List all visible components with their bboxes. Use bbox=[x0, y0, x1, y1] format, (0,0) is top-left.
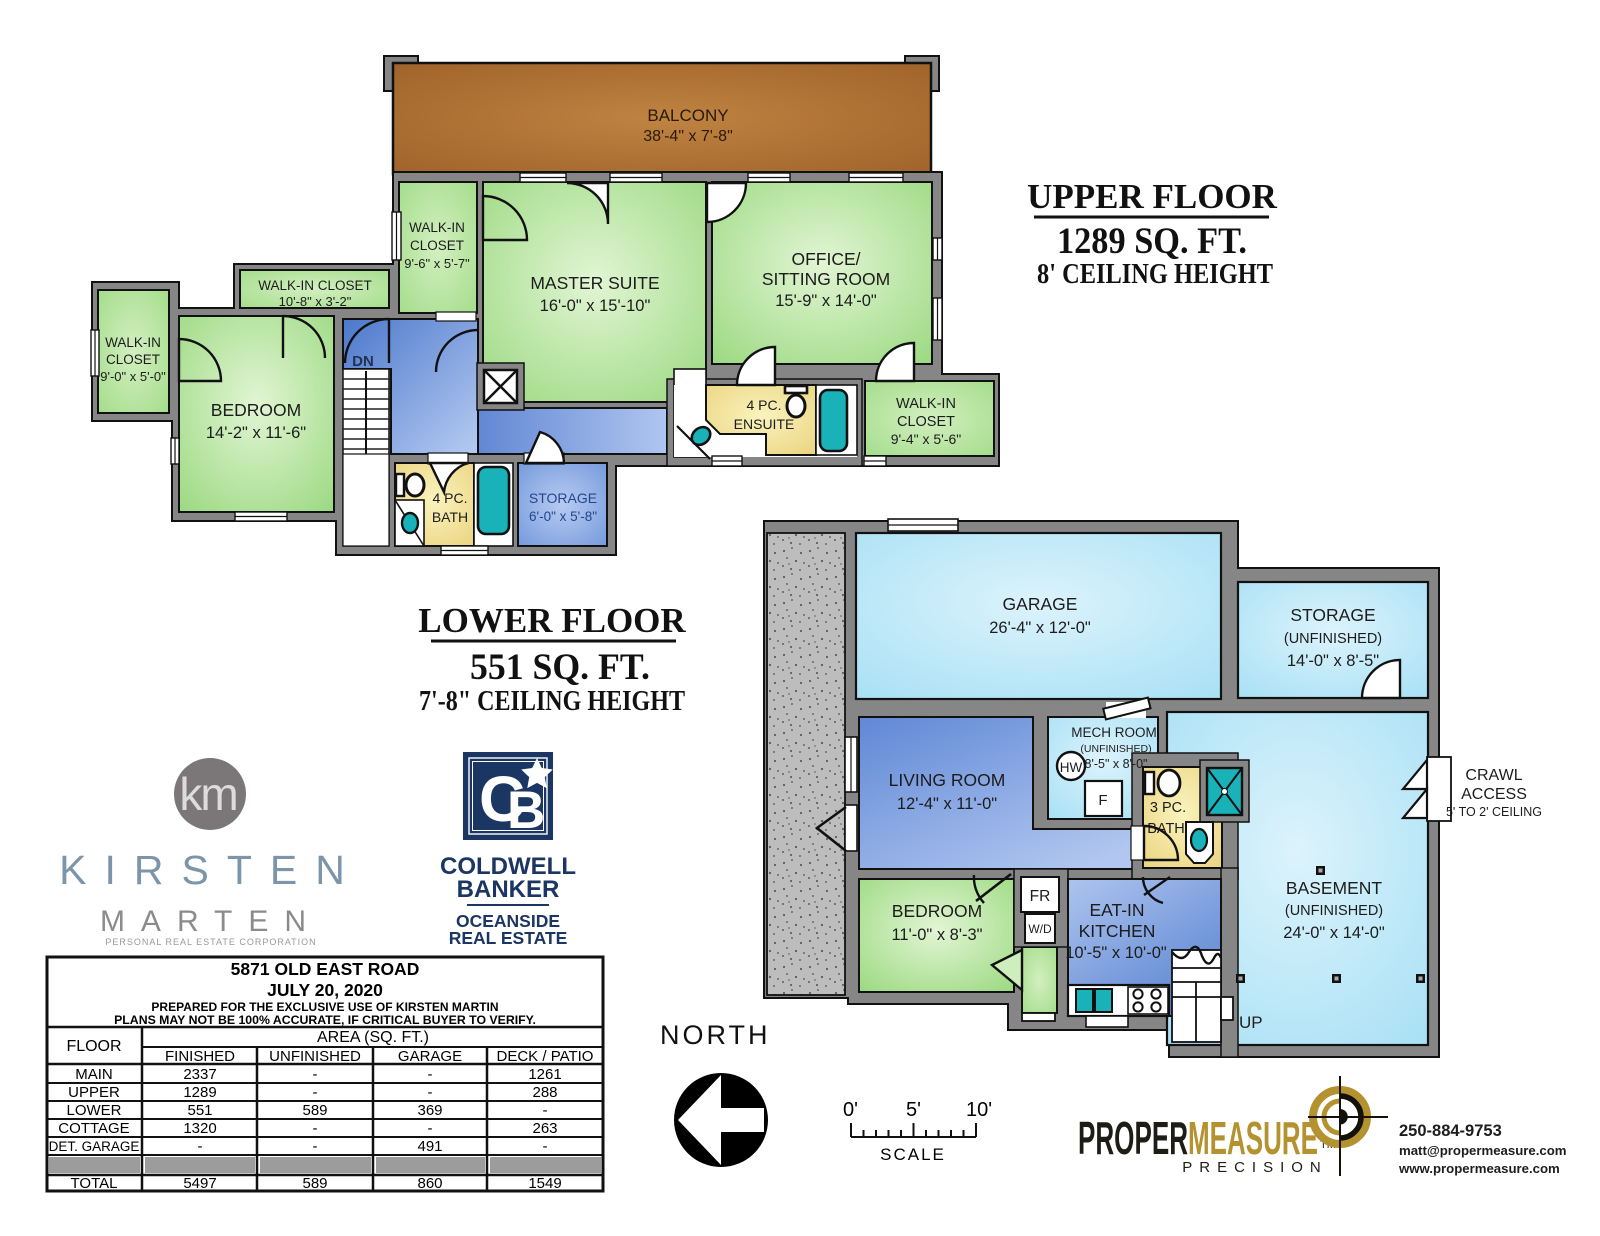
svg-text:MASTER SUITE: MASTER SUITE bbox=[530, 273, 659, 293]
svg-text:1549: 1549 bbox=[528, 1175, 561, 1192]
svg-text:589: 589 bbox=[302, 1175, 327, 1192]
svg-text:860: 860 bbox=[417, 1175, 442, 1192]
svg-text:10': 10' bbox=[966, 1099, 992, 1121]
svg-text:263: 263 bbox=[532, 1120, 557, 1137]
svg-text:14'-0" x 8'-5": 14'-0" x 8'-5" bbox=[1287, 652, 1379, 670]
svg-text:HW: HW bbox=[1060, 760, 1083, 775]
svg-text:MECH ROOM: MECH ROOM bbox=[1071, 725, 1157, 740]
svg-text:24'-0" x 14'-0": 24'-0" x 14'-0" bbox=[1283, 924, 1385, 942]
svg-text:MEASURE: MEASURE bbox=[1188, 1112, 1318, 1164]
svg-text:BATH: BATH bbox=[432, 509, 468, 525]
svg-text:COTTAGE: COTTAGE bbox=[58, 1120, 129, 1137]
svg-text:STORAGE: STORAGE bbox=[1290, 605, 1375, 625]
svg-text:FR: FR bbox=[1030, 888, 1051, 905]
svg-text:W/D: W/D bbox=[1028, 922, 1052, 936]
svg-text:KITCHEN: KITCHEN bbox=[1079, 921, 1156, 941]
svg-text:PROPER: PROPER bbox=[1078, 1112, 1188, 1164]
svg-text:OFFICE/: OFFICE/ bbox=[791, 249, 860, 269]
svg-text:551 SQ. FT.: 551 SQ. FT. bbox=[470, 647, 650, 688]
svg-text:1289: 1289 bbox=[183, 1084, 216, 1101]
svg-text:-: - bbox=[313, 1120, 318, 1137]
svg-text:26'-4" x 12'-0": 26'-4" x 12'-0" bbox=[989, 619, 1091, 637]
svg-text:4 PC.: 4 PC. bbox=[746, 397, 781, 413]
svg-text:-: - bbox=[313, 1084, 318, 1101]
svg-text:BEDROOM: BEDROOM bbox=[211, 400, 301, 420]
svg-text:F: F bbox=[1098, 792, 1107, 809]
svg-text:PRECISION: PRECISION bbox=[1182, 1159, 1328, 1176]
svg-text:LIVING ROOM: LIVING ROOM bbox=[889, 770, 1006, 790]
svg-text:5' TO 2' CEILING: 5' TO 2' CEILING bbox=[1446, 805, 1542, 819]
svg-text:5871 OLD EAST ROAD: 5871 OLD EAST ROAD bbox=[231, 959, 420, 979]
svg-text:9'-6" x 5'-7": 9'-6" x 5'-7" bbox=[404, 256, 470, 271]
svg-text:5': 5' bbox=[906, 1099, 921, 1121]
svg-text:WALK-IN CLOSET: WALK-IN CLOSET bbox=[258, 278, 372, 293]
svg-text:-: - bbox=[198, 1138, 203, 1155]
svg-text:BASEMENT: BASEMENT bbox=[1286, 878, 1383, 898]
svg-text:-: - bbox=[543, 1138, 548, 1155]
svg-text:(UNFINISHED): (UNFINISHED) bbox=[1285, 903, 1383, 919]
svg-text:369: 369 bbox=[417, 1102, 442, 1119]
svg-text:10'-8" x 3'-2": 10'-8" x 3'-2" bbox=[279, 294, 352, 309]
svg-text:-: - bbox=[428, 1084, 433, 1101]
svg-text:PREPARED FOR THE EXCLUSIVE USE: PREPARED FOR THE EXCLUSIVE USE OF KIRSTE… bbox=[151, 1000, 498, 1014]
svg-text:BANKER: BANKER bbox=[457, 876, 560, 903]
svg-text:3 PC.: 3 PC. bbox=[1150, 800, 1186, 816]
svg-text:-: - bbox=[428, 1066, 433, 1083]
svg-text:(UNFINISHED): (UNFINISHED) bbox=[1284, 631, 1382, 647]
svg-text:SITTING ROOM: SITTING ROOM bbox=[762, 269, 890, 289]
svg-text:4 PC.: 4 PC. bbox=[432, 490, 467, 506]
svg-text:SCALE: SCALE bbox=[880, 1145, 946, 1164]
svg-text:MARTEN: MARTEN bbox=[100, 905, 322, 938]
svg-text:-: - bbox=[428, 1120, 433, 1137]
svg-text:11'-0" x 8'-3": 11'-0" x 8'-3" bbox=[891, 926, 982, 944]
svg-text:www.propermeasure.com: www.propermeasure.com bbox=[1398, 1161, 1560, 1176]
svg-text:491: 491 bbox=[417, 1138, 442, 1155]
svg-text:GARAGE: GARAGE bbox=[1003, 594, 1078, 614]
svg-text:(UNFINISHED): (UNFINISHED) bbox=[1080, 743, 1151, 755]
svg-text:288: 288 bbox=[532, 1084, 557, 1101]
svg-text:B: B bbox=[507, 781, 545, 840]
svg-text:JULY 20, 2020: JULY 20, 2020 bbox=[267, 980, 383, 1000]
svg-text:CRAWL: CRAWL bbox=[1465, 767, 1522, 784]
svg-text:10'-5" x 10'-0": 10'-5" x 10'-0" bbox=[1065, 944, 1167, 962]
svg-text:-: - bbox=[313, 1138, 318, 1155]
svg-text:GARAGE: GARAGE bbox=[398, 1048, 462, 1065]
svg-text:UP: UP bbox=[1239, 1013, 1263, 1032]
svg-text:250-884-9753: 250-884-9753 bbox=[1399, 1122, 1502, 1140]
svg-text:BALCONY: BALCONY bbox=[647, 106, 728, 125]
svg-text:DECK / PATIO: DECK / PATIO bbox=[497, 1048, 594, 1065]
svg-text:matt@propermeasure.com: matt@propermeasure.com bbox=[1399, 1143, 1567, 1158]
svg-text:km: km bbox=[179, 768, 236, 820]
svg-text:BATH: BATH bbox=[1147, 821, 1185, 837]
svg-text:LOWER FLOOR: LOWER FLOOR bbox=[418, 601, 686, 640]
svg-text:2337: 2337 bbox=[183, 1066, 216, 1083]
svg-text:STORAGE: STORAGE bbox=[529, 490, 597, 506]
svg-text:UPPER: UPPER bbox=[68, 1084, 120, 1101]
svg-text:WALK-IN: WALK-IN bbox=[896, 396, 956, 412]
svg-text:CLOSET: CLOSET bbox=[106, 352, 160, 367]
svg-text:1261: 1261 bbox=[528, 1066, 561, 1083]
svg-text:1320: 1320 bbox=[183, 1120, 216, 1137]
svg-text:UNFINISHED: UNFINISHED bbox=[269, 1048, 361, 1065]
svg-text:ENSUITE: ENSUITE bbox=[734, 416, 795, 432]
svg-text:BEDROOM: BEDROOM bbox=[892, 901, 982, 921]
svg-text:CLOSET: CLOSET bbox=[410, 238, 464, 253]
svg-text:WALK-IN: WALK-IN bbox=[105, 335, 161, 350]
svg-text:-: - bbox=[313, 1066, 318, 1083]
svg-text:UPPER FLOOR: UPPER FLOOR bbox=[1027, 177, 1278, 216]
svg-text:15'-9" x 14'-0": 15'-9" x 14'-0" bbox=[775, 292, 877, 310]
svg-text:14'-2" x 11'-6": 14'-2" x 11'-6" bbox=[206, 424, 306, 442]
svg-text:WALK-IN: WALK-IN bbox=[409, 220, 465, 235]
svg-text:7'-8" CEILING HEIGHT: 7'-8" CEILING HEIGHT bbox=[419, 686, 685, 717]
svg-text:DN: DN bbox=[352, 353, 374, 370]
svg-text:FINISHED: FINISHED bbox=[165, 1048, 235, 1065]
svg-text:CLOSET: CLOSET bbox=[897, 414, 955, 430]
svg-text:AREA (SQ. FT.): AREA (SQ. FT.) bbox=[317, 1029, 429, 1046]
svg-text:9'-0" x 5'-0": 9'-0" x 5'-0" bbox=[100, 369, 166, 384]
svg-text:16'-0" x 15'-10": 16'-0" x 15'-10" bbox=[540, 297, 651, 315]
svg-text:MAIN: MAIN bbox=[75, 1066, 113, 1083]
svg-text:LOWER: LOWER bbox=[66, 1102, 121, 1119]
svg-text:38'-4" x 7'-8": 38'-4" x 7'-8" bbox=[643, 128, 733, 145]
svg-text:ACCESS: ACCESS bbox=[1461, 786, 1527, 803]
svg-text:8'-5" x 8'-0": 8'-5" x 8'-0" bbox=[1085, 757, 1148, 771]
svg-text:DET. GARAGE: DET. GARAGE bbox=[49, 1139, 140, 1154]
svg-text:KIRSTEN: KIRSTEN bbox=[59, 847, 363, 893]
svg-text:PERSONAL REAL ESTATE CORPORATI: PERSONAL REAL ESTATE CORPORATION bbox=[105, 937, 316, 947]
svg-text:1289 SQ. FT.: 1289 SQ. FT. bbox=[1057, 221, 1247, 262]
svg-text:EAT-IN: EAT-IN bbox=[1089, 900, 1144, 920]
svg-text:-: - bbox=[543, 1102, 548, 1119]
svg-text:PLANS MAY NOT BE 100% ACCURATE: PLANS MAY NOT BE 100% ACCURATE, IF CRITI… bbox=[114, 1013, 536, 1027]
svg-text:9'-4" x 5'-6": 9'-4" x 5'-6" bbox=[891, 431, 962, 447]
svg-text:6'-0" x 5'-8": 6'-0" x 5'-8" bbox=[529, 509, 597, 524]
svg-text:589: 589 bbox=[302, 1102, 327, 1119]
svg-text:8' CEILING HEIGHT: 8' CEILING HEIGHT bbox=[1037, 259, 1273, 290]
svg-text:TOTAL: TOTAL bbox=[71, 1175, 118, 1192]
svg-text:551: 551 bbox=[187, 1102, 212, 1119]
svg-text:0': 0' bbox=[843, 1099, 858, 1121]
svg-text:NORTH: NORTH bbox=[660, 1020, 771, 1050]
svg-text:5497: 5497 bbox=[183, 1175, 216, 1192]
svg-text:FLOOR: FLOOR bbox=[66, 1038, 121, 1055]
svg-text:REAL ESTATE: REAL ESTATE bbox=[449, 928, 568, 948]
svg-text:12'-4" x 11'-0": 12'-4" x 11'-0" bbox=[897, 795, 997, 813]
